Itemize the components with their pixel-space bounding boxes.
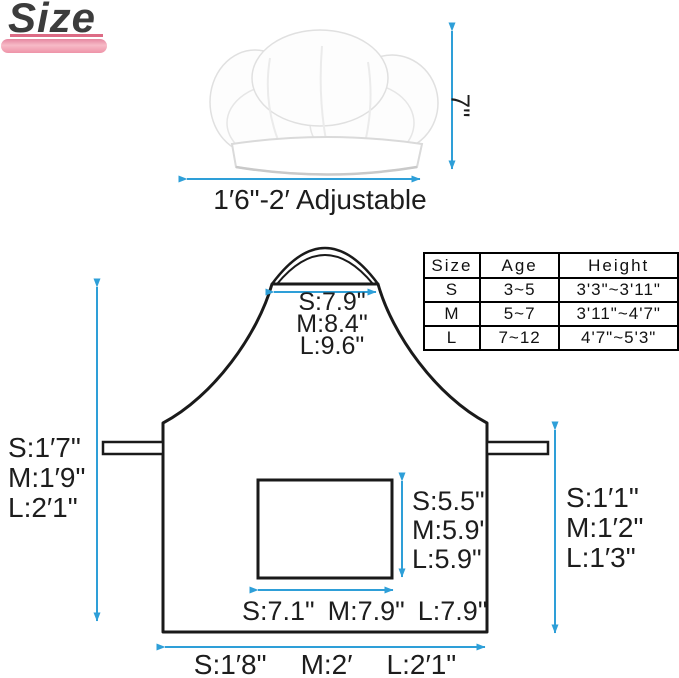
side-height-s: S:1′1" [566, 483, 643, 513]
pocket-width-m: M:7.9" [328, 596, 405, 627]
side-height-l: L:1′3" [566, 543, 643, 573]
table-cell-age-l: 7~12 [480, 326, 560, 350]
hat-band [232, 137, 422, 175]
apron-length-m: M:1′9" [8, 463, 85, 493]
neck-strap-outer [272, 248, 378, 284]
table-cell-height-l: 4'7"~5'3" [559, 326, 678, 350]
pocket-height-m: M:5.9" [412, 516, 489, 545]
table-row-s: S 3~5 3'3"~3'11" [424, 278, 678, 302]
table-header-age: Age [480, 253, 560, 278]
chef-hat-image [210, 30, 438, 175]
side-height-m: M:1′2" [566, 513, 643, 543]
neck-width-l: L:9.6" [272, 335, 392, 357]
bottom-width-s: S:1′8" [194, 649, 267, 678]
pocket-height-l: L:5.9" [412, 545, 489, 574]
size-table-header-row: Size Age Height [424, 253, 678, 278]
size-chart-infographic: Size 7" 1′6"-2′ Adjustable Size Age Heig… [0, 0, 679, 678]
neck-width-labels: S:7.9" M:8.4" L:9.6" [272, 291, 392, 357]
table-cell-height-s: 3'3"~3'11" [559, 278, 678, 302]
size-table: Size Age Height S 3~5 3'3"~3'11" M 5~7 3… [423, 252, 679, 351]
apron-length-s: S:1′7" [8, 433, 85, 463]
pocket-width-s: S:7.1" [242, 596, 315, 627]
pocket-height-labels: S:5.5" M:5.9" L:5.9" [412, 487, 489, 574]
bottom-width-labels: S:1′8" M:2′ L:2′1" [163, 649, 487, 678]
table-cell-age-s: 3~5 [480, 278, 560, 302]
pocket-width-l: L:7.9" [418, 596, 488, 627]
apron-length-labels: S:1′7" M:1′9" L:2′1" [8, 433, 85, 523]
title-underline-bar [1, 39, 107, 53]
table-cell-size-l: L [424, 326, 480, 350]
hat-width-label: 1′6"-2′ Adjustable [170, 184, 470, 216]
table-row-l: L 7~12 4'7"~5'3" [424, 326, 678, 350]
table-header-size: Size [424, 253, 480, 278]
table-row-m: M 5~7 3'11"~4'7" [424, 302, 678, 326]
table-header-height: Height [559, 253, 678, 278]
table-cell-size-s: S [424, 278, 480, 302]
neck-strap-inner [277, 255, 373, 284]
bottom-width-l: L:2′1" [387, 649, 457, 678]
pocket-height-s: S:5.5" [412, 487, 489, 516]
bottom-width-m: M:2′ [301, 649, 353, 678]
pocket-width-labels: S:7.1" M:7.9" L:7.9" [242, 596, 487, 627]
apron-length-l: L:2′1" [8, 493, 85, 523]
left-waist-tie [103, 442, 163, 454]
side-height-labels: S:1′1" M:1′2" L:1′3" [566, 483, 643, 573]
hat-height-label: 7" [444, 94, 475, 118]
apron-pocket [258, 480, 392, 578]
table-cell-age-m: 5~7 [480, 302, 560, 326]
right-waist-tie [487, 442, 548, 454]
table-cell-size-m: M [424, 302, 480, 326]
title-underline-thin [10, 34, 103, 37]
table-cell-height-m: 3'11"~4'7" [559, 302, 678, 326]
